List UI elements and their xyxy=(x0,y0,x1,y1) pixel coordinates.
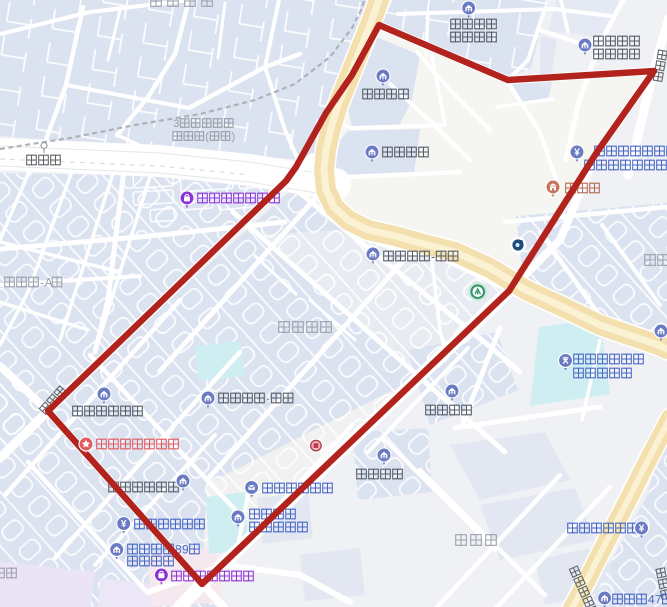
svg-text:-: - xyxy=(431,249,435,263)
svg-text:4: 4 xyxy=(648,592,655,606)
svg-text:-: - xyxy=(40,275,44,289)
svg-text:(: ( xyxy=(205,131,209,143)
svg-text:·: · xyxy=(266,391,270,405)
svg-text:): ) xyxy=(232,131,236,143)
svg-text:¥: ¥ xyxy=(574,147,580,158)
svg-text:¥: ¥ xyxy=(639,523,645,534)
svg-text:3: 3 xyxy=(173,118,179,130)
svg-text:7: 7 xyxy=(655,592,662,606)
svg-text:¥: ¥ xyxy=(121,519,127,530)
svg-text:9: 9 xyxy=(182,542,189,556)
svg-text:A: A xyxy=(45,275,53,289)
